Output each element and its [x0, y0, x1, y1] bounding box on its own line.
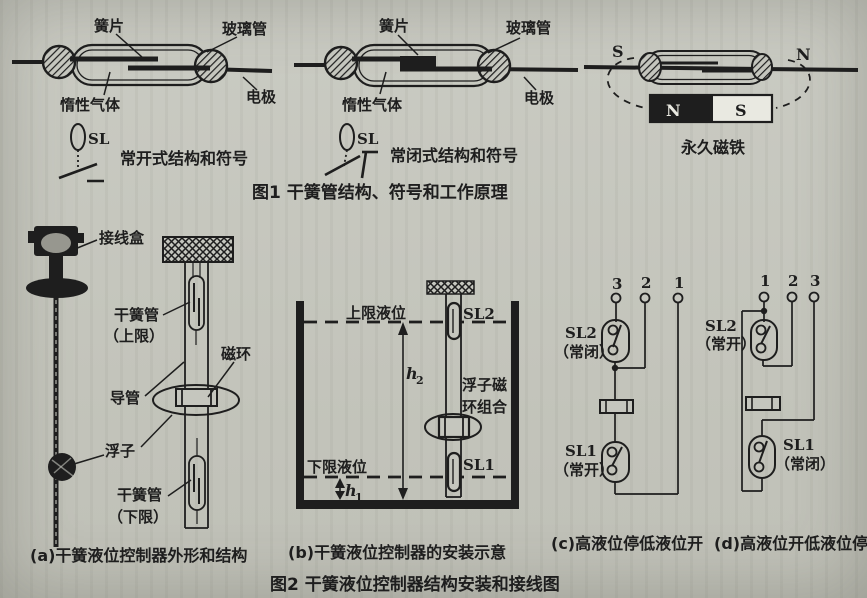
float-ring-label-line1: 浮子磁 — [462, 376, 507, 394]
magnet-pole-n: N — [666, 101, 681, 120]
inert-gas-label: 惰性气体 — [342, 96, 403, 114]
magnet-pole-s: S — [735, 101, 747, 120]
terminal-3-label: 3 — [612, 275, 622, 293]
glass-tube-label: 玻璃管 — [222, 20, 267, 38]
controller-external-view — [26, 226, 88, 547]
reed-switch-sl1 — [448, 453, 460, 491]
h1-subscript: 1 — [355, 491, 363, 504]
reed-switch-lower — [189, 456, 205, 510]
sl-symbol-label: SL — [88, 130, 110, 148]
sl1-state-label: （常闭） — [775, 455, 835, 473]
reed-lower-label: 干簧管 — [117, 486, 162, 504]
junction-dot — [761, 308, 767, 314]
panel-d-wiring: 1 2 3 — [696, 272, 867, 553]
terminal-1-label: 1 — [760, 272, 770, 290]
reed-upper-label: 干簧管 — [114, 306, 159, 324]
induced-pole-n: N — [796, 45, 811, 64]
junction-box-label: 接线盒 — [99, 229, 145, 247]
panel-b-caption: (b)干簧液位控制器的安装示意 — [288, 543, 506, 562]
electrode-label: 电极 — [524, 89, 555, 107]
float-magnet-ring — [600, 400, 633, 413]
terminal-circles — [760, 293, 819, 302]
reed-label: 簧片 — [379, 17, 409, 35]
tank-wall-left — [296, 301, 304, 504]
terminal-3-label: 3 — [810, 272, 820, 290]
terminal-2-label: 2 — [788, 272, 798, 290]
junction-dot — [612, 365, 618, 371]
reed-lower-limit-label: （下限） — [108, 508, 168, 526]
terminal-2-label: 2 — [641, 274, 651, 292]
reed-switch-sl2 — [448, 303, 460, 339]
reed-upper-limit-label: （上限） — [104, 327, 164, 345]
sl1-label: SL1 — [463, 456, 495, 474]
glass-tube-label: 玻璃管 — [506, 19, 551, 37]
reed-switch-normally-open: 簧片 玻璃管 惰性气体 电极 SL 常开式结构和符号 — [12, 17, 277, 181]
upper-level-label: 上限液位 — [346, 304, 406, 322]
guide-tube-label: 导管 — [110, 389, 140, 407]
terminal-circles — [612, 294, 683, 303]
mounting-bracket — [427, 281, 474, 294]
electrode-label: 电极 — [246, 88, 277, 106]
induced-pole-s: S — [612, 42, 624, 61]
electrode-end-right — [752, 54, 772, 80]
sl1-state-label: （常开） — [554, 461, 614, 479]
h2-subscript: 2 — [416, 374, 424, 387]
panel-c-caption: (c)高液位停低液位开 — [551, 534, 703, 553]
sl1-label: SL1 — [783, 436, 815, 454]
closed-contact — [400, 56, 436, 71]
panel-a-controller-structure: 接线盒 干簧管 （上限） 磁环 导管 浮子 干簧管 （下限） (a)干簧液位控制… — [26, 226, 251, 565]
permanent-magnet-label: 永久磁铁 — [680, 138, 745, 157]
lower-level-label: 下限液位 — [307, 458, 367, 476]
float-magnet-ring — [746, 397, 780, 410]
float-ring-label-line2: 环组合 — [462, 398, 508, 416]
sl1-label: SL1 — [565, 442, 597, 460]
tank-wall-right — [511, 301, 519, 504]
permanent-magnet-unit: S N N S 永久磁铁 — [584, 42, 858, 157]
mounting-flange — [26, 278, 88, 298]
normally-open-caption: 常开式结构和符号 — [120, 149, 248, 168]
leader-lines — [70, 240, 234, 496]
controller-internal-view — [153, 237, 239, 528]
scanned-textbook-page: 簧片 玻璃管 惰性气体 电极 SL 常开式结构和符号 簧片 玻璃管 惰 — [0, 0, 867, 598]
bar-magnet: N S — [650, 95, 772, 122]
inert-gas-label: 惰性气体 — [60, 96, 121, 114]
electrode-end-left — [639, 53, 661, 81]
float-magnet-ring — [439, 417, 469, 437]
glass-tube-outline — [72, 45, 208, 85]
reed-switch-diagram: 簧片 玻璃管 惰性气体 电极 SL 常开式结构和符号 簧片 玻璃管 惰 — [0, 0, 867, 598]
reed-switch-normally-closed: 簧片 玻璃管 惰性气体 电极 SL 常闭式结构和符号 — [294, 17, 578, 178]
electrode-end-left — [325, 47, 357, 79]
sl1-switch-symbol — [749, 436, 775, 478]
reed-switch-upper — [189, 276, 204, 330]
panel-a-caption: (a)干簧液位控制器外形和结构 — [30, 546, 247, 565]
wires — [615, 303, 678, 494]
figure1-caption: 图1 干簧管结构、符号和工作原理 — [252, 182, 508, 203]
panel-c-wiring: 3 2 1 — [551, 274, 703, 553]
float-label: 浮子 — [105, 442, 135, 460]
sl-symbol-normally-open: SL — [59, 124, 110, 181]
electrode-end-left — [43, 46, 75, 78]
terminal-1-label: 1 — [674, 274, 684, 292]
reed-label: 簧片 — [94, 17, 124, 35]
sl2-state-label: （常闭） — [554, 343, 614, 361]
electrode-end-right — [478, 50, 510, 82]
sl2-label: SL2 — [705, 317, 737, 335]
panel-b-installation: 上限液位 下限液位 SL2 SL1 h 2 h 1 浮子磁 环组合 (b)干簧液… — [288, 281, 519, 562]
h2-dimension — [398, 322, 408, 500]
panel-d-caption: (d)高液位开低液位停 — [714, 534, 867, 553]
tank-bottom — [296, 500, 519, 509]
h1-dimension — [335, 478, 345, 500]
sl2-label: SL2 — [565, 324, 597, 342]
mounting-cap — [163, 237, 233, 262]
magnet-ring-label: 磁环 — [221, 345, 251, 363]
sl2-label: SL2 — [463, 305, 495, 323]
sl-symbol-label: SL — [357, 130, 379, 148]
figure2-caption: 图2 干簧液位控制器结构安装和接线图 — [270, 574, 560, 595]
normally-closed-caption: 常闭式结构和符号 — [390, 146, 518, 165]
sl2-state-label: （常开） — [696, 335, 756, 353]
sl-symbol-normally-closed: SL — [325, 124, 379, 178]
